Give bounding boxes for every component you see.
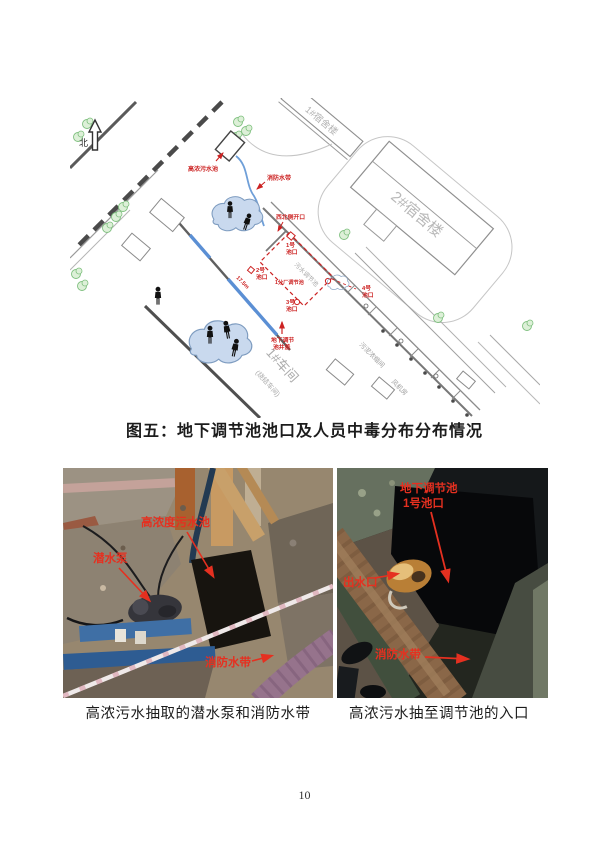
figure-caption: 图五：地下调节池池口及人员中毒分布分布情况	[0, 417, 609, 441]
pool1-label-1: 1号	[286, 241, 295, 249]
pool1-label-2: 池口	[286, 248, 298, 256]
pool4-label-1: 4号	[362, 284, 371, 292]
north-label: 北	[79, 138, 88, 148]
photo-right-caption: 高浓污水抽至调节池的入口	[330, 702, 548, 722]
nw-opening-label: 西北侧开口	[276, 213, 305, 221]
fire-hose-label: 消防水带	[267, 174, 291, 182]
photo-left-caption: 高浓污水抽取的潜水泵和消防水带	[63, 702, 333, 722]
hose-annotation: 消防水带	[205, 655, 251, 669]
pit-annotation: 高浓度污水池	[141, 515, 210, 529]
pump-annotation: 潜水泵	[93, 551, 128, 565]
photo-left-scene	[63, 468, 333, 698]
manhole-label-1: 地下调节	[271, 336, 294, 344]
pool2-label-2: 池口	[256, 273, 268, 281]
pool3-label-2: 池口	[286, 305, 298, 313]
pool-annotation-line2: 1号池口	[403, 496, 444, 510]
sewage-pool-label: 高浓污水池	[188, 165, 218, 173]
outlet-annotation: 出水口	[343, 575, 378, 589]
pool4-label-2: 池口	[362, 291, 374, 299]
photo-pump-and-hose: 高浓度污水池 潜水泵 消防水带	[63, 468, 333, 698]
pool-annotation-line1: 地下调节池	[400, 481, 458, 495]
pool3-label-1: 3号	[286, 298, 295, 306]
hose-annotation-right: 消防水带	[375, 647, 421, 661]
page-number: 10	[0, 788, 609, 803]
manhole-label-2: 池井盖	[273, 343, 291, 351]
pool2-label-1: 2号	[256, 266, 265, 274]
document-page: 北 1#宿舍楼 2#宿舍楼	[0, 0, 609, 860]
site-plan-figure: 北 1#宿舍楼 2#宿舍楼	[70, 98, 540, 418]
photo-pool-inlet: 地下调节池 1号池口 出水口 消防水带	[337, 468, 548, 698]
center-pool-label: 1分厂调节池	[275, 278, 305, 286]
